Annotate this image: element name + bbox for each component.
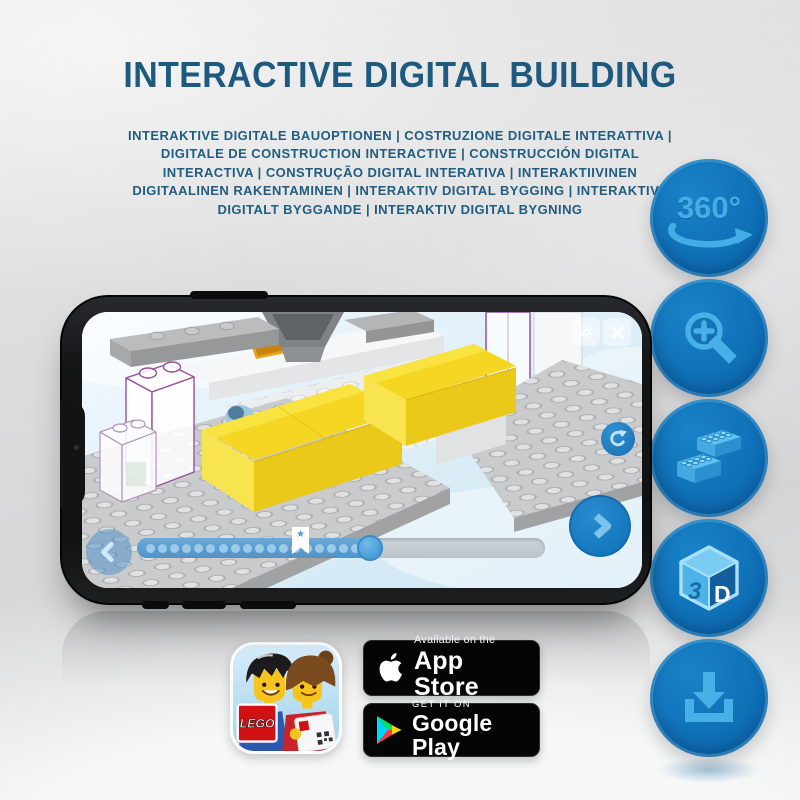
progress-step-dot: [315, 544, 324, 553]
progress-step-dot: [339, 544, 348, 553]
chevron-right-icon: [585, 511, 615, 541]
progress-step-dot: [327, 544, 336, 553]
feature-3d: 3 D: [650, 519, 768, 637]
previous-step-button[interactable]: [86, 529, 132, 575]
power-button: [190, 291, 268, 299]
download-icon: [677, 669, 741, 727]
google-play-icon: [376, 716, 402, 744]
settings-button[interactable]: [572, 318, 600, 346]
progress-step-dot: [170, 544, 179, 553]
chevron-left-icon: [96, 539, 122, 565]
rotate-view-button[interactable]: [601, 422, 635, 456]
multilingual-subtitle: INTERAKTIVE DIGITALE BAUOPTIONEN | COSTR…: [128, 127, 673, 219]
google-play-tagline: GET IT ON: [412, 700, 527, 710]
progress-step-dot: [182, 544, 191, 553]
app-screen: ★: [82, 312, 642, 588]
3d-view-icon: 3 D: [676, 543, 742, 613]
progress-step-dot: [255, 544, 264, 553]
progress-step-dot: [206, 544, 215, 553]
poster: INTERACTIVE DIGITAL BUILDING INTERAKTIVE…: [0, 0, 800, 800]
progress-step-dot: [267, 544, 276, 553]
close-icon: [610, 325, 625, 340]
360-swoosh-arrow-icon: [665, 223, 753, 249]
progress-step-dot: [231, 544, 240, 553]
zoom-in-icon: [677, 306, 741, 370]
google-play-label: Google Play: [412, 711, 527, 759]
mute-switch: [142, 601, 169, 609]
feature-360: 360°: [650, 159, 768, 277]
progress-step-dot: [279, 544, 288, 553]
progress-step-dot: [146, 544, 155, 553]
next-step-button[interactable]: [569, 495, 631, 557]
volume-down-button: [240, 601, 296, 609]
phone-reflection: [62, 611, 650, 707]
progress-step-dot: [158, 544, 167, 553]
lego-bricks-icon: [673, 426, 745, 490]
svg-text:D: D: [714, 581, 731, 607]
svg-text:LEGO: LEGO: [240, 716, 275, 730]
svg-text:3: 3: [688, 578, 702, 605]
lego-app-icon[interactable]: LEGO: [230, 642, 342, 754]
close-button[interactable]: [603, 318, 631, 346]
feature-bricks: [650, 399, 768, 517]
app-store-badge[interactable]: Available on the App Store: [363, 640, 540, 696]
progress-step-dot: [194, 544, 203, 553]
progress-handle[interactable]: [357, 535, 383, 561]
app-store-tagline: Available on the: [414, 635, 527, 647]
lego-logo: LEGO: [238, 705, 277, 742]
circle-reflection: [658, 757, 760, 783]
progress-step-dot: [243, 544, 252, 553]
google-play-badge[interactable]: GET IT ON Google Play: [363, 703, 540, 757]
volume-up-button: [182, 601, 226, 609]
smartphone: ★: [60, 295, 652, 605]
lego-app-artwork: LEGO: [233, 645, 339, 751]
gear-icon: [578, 324, 595, 341]
progress-track[interactable]: ★: [137, 538, 545, 558]
page-title: INTERACTIVE DIGITAL BUILDING: [24, 54, 776, 96]
feature-zoom: [650, 279, 768, 397]
progress-step-dot: [219, 544, 228, 553]
rotate-icon: [607, 428, 629, 450]
phone-notch: [60, 401, 85, 507]
360-rotation-icon: 360°: [677, 192, 741, 223]
app-store-label: App Store: [414, 648, 527, 701]
progress-fill: [137, 538, 370, 558]
feature-download: [650, 639, 768, 757]
apple-icon: [376, 651, 404, 685]
